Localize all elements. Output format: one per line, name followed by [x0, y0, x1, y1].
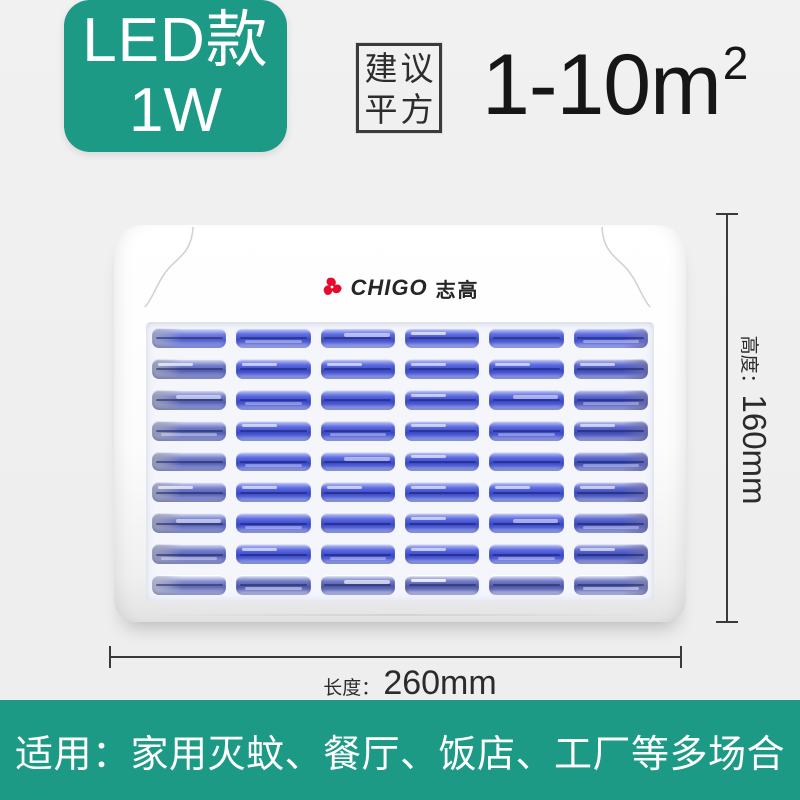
length-dimension-label: 长度：260mm: [0, 664, 800, 703]
led-slat: [236, 421, 310, 441]
suggest-box-line2: 平方: [359, 89, 439, 130]
led-slat: [152, 575, 226, 595]
height-dimension-label: 高度：160mm: [729, 260, 773, 580]
height-label-text: 高度：: [737, 335, 764, 392]
led-slat: [405, 421, 479, 441]
led-slat: [236, 544, 310, 564]
led-slat: [236, 390, 310, 410]
led-slat: [152, 421, 226, 441]
led-slat: [405, 390, 479, 410]
brand-logo: CHIGO 志高: [114, 273, 686, 303]
led-slat: [489, 390, 563, 410]
led-slat: [152, 328, 226, 348]
led-slat: [236, 359, 310, 379]
led-slat: [489, 575, 563, 595]
suggest-box-line1: 建议: [359, 48, 439, 89]
led-slat: [489, 513, 563, 533]
led-slat: [574, 328, 648, 348]
mosquito-lamp: CHIGO 志高: [114, 225, 686, 622]
led-slat: [152, 513, 226, 533]
led-slat: [236, 482, 310, 502]
led-slat: [321, 390, 395, 410]
led-slat: [405, 452, 479, 472]
led-slat: [236, 513, 310, 533]
led-slat: [321, 544, 395, 564]
led-slat: [321, 513, 395, 533]
led-slat: [574, 513, 648, 533]
led-slat: [236, 328, 310, 348]
chigo-pinwheel-icon: [320, 275, 344, 299]
usage-banner-text: 适用：家用灭蚊、餐厅、饭店、工厂等多场合: [15, 723, 785, 778]
height-dimension-line: [726, 213, 728, 623]
area-value: 1-10m: [482, 37, 721, 133]
led-slat: [574, 359, 648, 379]
height-value-text: 160mm: [735, 394, 773, 504]
area-range: 1-10m2: [482, 39, 748, 131]
led-slat: [405, 575, 479, 595]
area-superscript: 2: [723, 36, 749, 90]
led-slat: [236, 575, 310, 595]
led-slat: [489, 421, 563, 441]
led-slat: [405, 513, 479, 533]
led-slat: [152, 544, 226, 564]
led-grille: [146, 322, 654, 601]
led-slat: [489, 482, 563, 502]
led-slat: [152, 452, 226, 472]
led-slat: [574, 575, 648, 595]
usage-banner: 适用：家用灭蚊、餐厅、饭店、工厂等多场合: [0, 700, 800, 800]
led-slat: [321, 482, 395, 502]
led-slat: [152, 482, 226, 502]
suggest-box: 建议 平方: [356, 43, 442, 133]
power-badge-type: LED款: [64, 6, 287, 76]
led-slat: [574, 544, 648, 564]
led-slat: [574, 452, 648, 472]
power-badge: LED款 1W: [64, 0, 287, 152]
led-slat: [405, 482, 479, 502]
brand-name-en: CHIGO: [350, 275, 427, 301]
length-label-text: 长度：: [323, 673, 380, 700]
led-slat: [405, 544, 479, 564]
led-slat: [489, 452, 563, 472]
led-slat: [236, 452, 310, 472]
led-slat: [152, 390, 226, 410]
led-slat: [405, 359, 479, 379]
led-slat: [321, 452, 395, 472]
product-poster: LED款 1W 建议 平方 1-10m2 CHIGO 志高: [0, 0, 800, 800]
led-slat: [574, 421, 648, 441]
brand-name-cn: 志高: [436, 274, 480, 303]
led-slat: [574, 482, 648, 502]
led-slat: [321, 421, 395, 441]
led-slat: [489, 544, 563, 564]
led-slat: [489, 359, 563, 379]
power-badge-watt: 1W: [64, 76, 287, 146]
led-slat: [574, 390, 648, 410]
led-slat: [321, 359, 395, 379]
led-slat: [489, 328, 563, 348]
length-value-text: 260mm: [383, 664, 496, 703]
led-slat: [405, 328, 479, 348]
led-slat: [321, 575, 395, 595]
led-slat: [152, 359, 226, 379]
led-slat: [321, 328, 395, 348]
length-dimension-line: [109, 656, 682, 658]
